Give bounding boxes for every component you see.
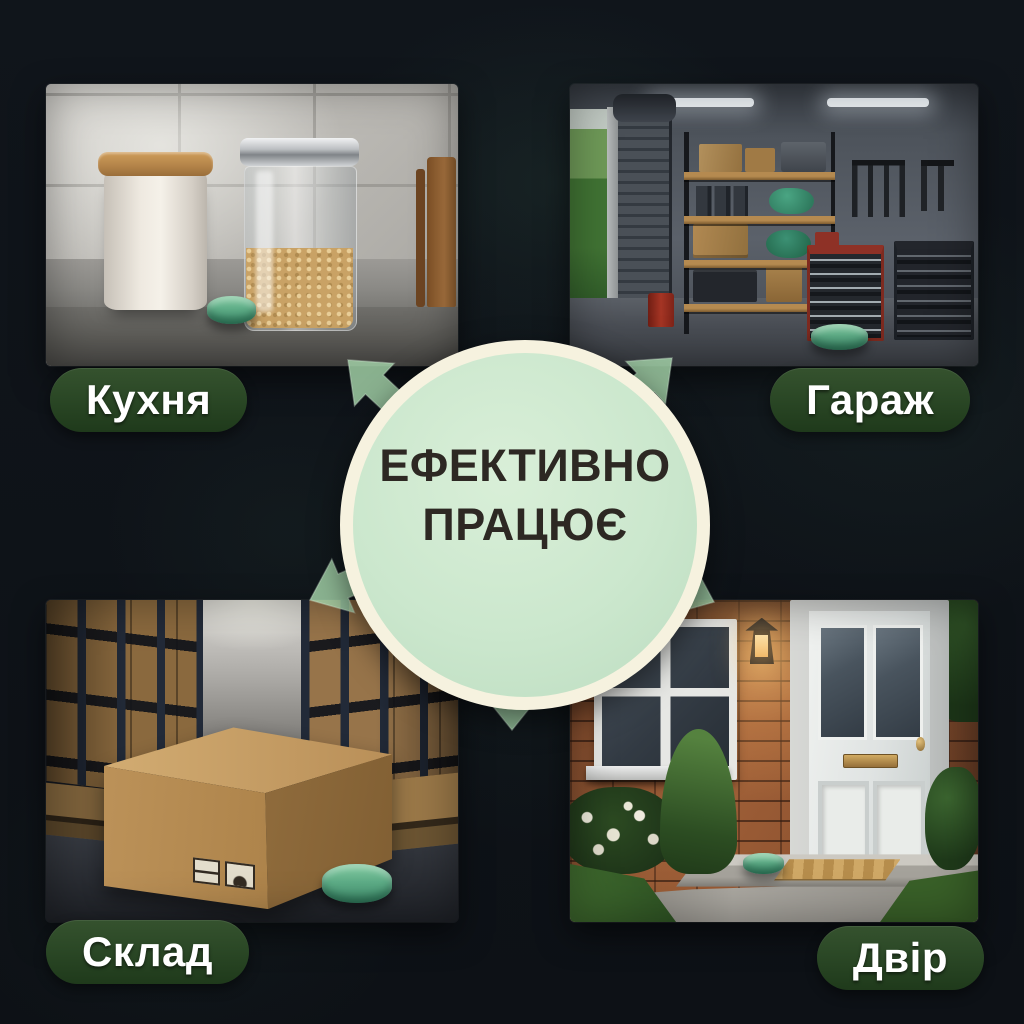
center-title-line1: ЕФЕКТИВНО bbox=[379, 443, 670, 488]
center-title-line2: ПРАЦЮЄ bbox=[422, 502, 627, 547]
badge-warehouse: Склад bbox=[46, 920, 249, 984]
center-circle: ЕФЕКТИВНО ПРАЦЮЄ bbox=[340, 340, 710, 710]
center-title: ЕФЕКТИВНО ПРАЦЮЄ bbox=[379, 443, 670, 547]
badge-yard: Двір bbox=[817, 926, 984, 990]
poster-canvas: ЕФЕКТИВНО ПРАЦЮЄ Кухня Гараж Склад Двір bbox=[0, 0, 1024, 1024]
badge-garage: Гараж bbox=[770, 368, 970, 432]
badge-kitchen: Кухня bbox=[50, 368, 247, 432]
